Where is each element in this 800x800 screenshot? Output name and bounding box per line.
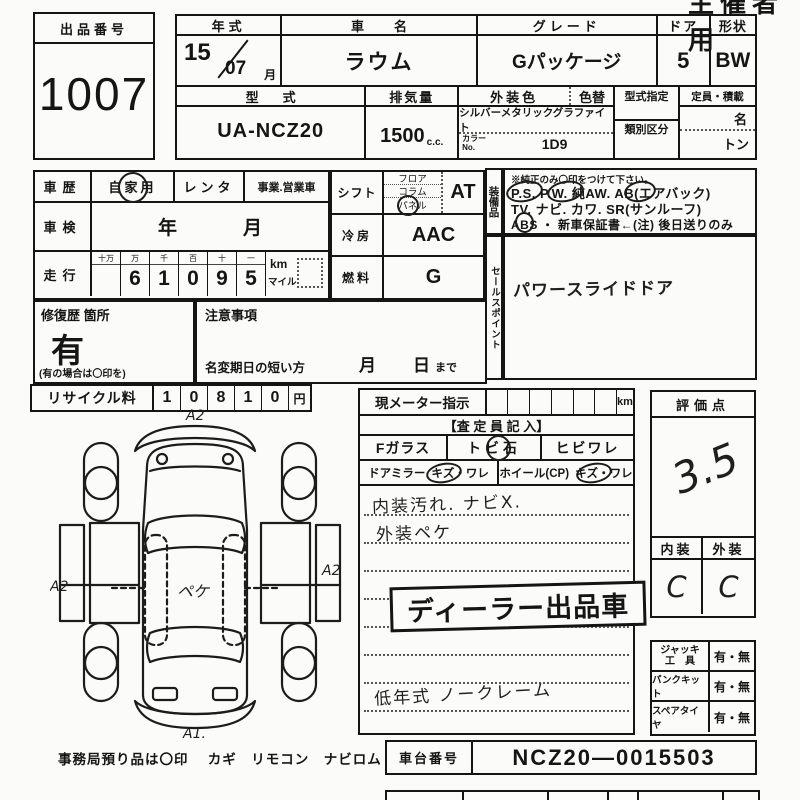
assessor-header: 【査 定 員 記 入】 <box>360 416 633 436</box>
crack-option: ヒビワレ <box>542 436 633 459</box>
year-value: 15 <box>184 39 211 67</box>
evaluation-box: 評価点 3.5 内装 外装 C C <box>650 390 756 618</box>
door-label: ドア <box>658 16 709 36</box>
bottom-partial-table <box>385 790 760 800</box>
mileage-unit-mile: マイル <box>268 274 297 288</box>
exterior-label: 外装 <box>703 538 754 558</box>
grade-value: Gパッケージ <box>478 36 656 85</box>
car-diagram: A2 A2 A2 A1. ペケ <box>50 405 350 740</box>
repair-box: 修復歴 箇所 有 (有の場合は〇印を) <box>33 300 195 384</box>
exterior-grade: C <box>703 560 754 614</box>
model-cell: 型式 UA-NCZ20 <box>177 87 366 158</box>
car-body-outline <box>143 444 247 714</box>
deposit-note: 事務局預り品は〇印 カギ リモコン ナビロム <box>58 748 382 768</box>
puncture-kit-label: パンクキット <box>652 672 710 700</box>
mirror-label: ドアミラー <box>368 465 425 481</box>
right-rear-fender <box>282 623 316 701</box>
evaluation-label: 評価点 <box>652 392 754 418</box>
left-outer-strip <box>60 525 84 621</box>
equipment-box: ※純正のみ〇印をつけて下さい。 P.S. P.W. 純AW. AB(エアバック)… <box>503 168 757 235</box>
jack-tools-value: 有・無 <box>710 642 754 670</box>
history-business: 事業.営業車 <box>245 172 328 201</box>
auction-number-box: 出品番号 1007 <box>33 12 155 160</box>
mileage-col-1k: 千 1 <box>150 252 179 296</box>
grade-cell: グレード Gパッケージ <box>478 16 658 85</box>
cooling-value: AAC <box>384 215 483 255</box>
front-glass-label: Fガラス <box>360 436 448 459</box>
interior-grade: C <box>652 560 703 614</box>
auction-number-label: 出品番号 <box>35 14 153 44</box>
annotation-right: A2 <box>321 563 341 579</box>
model-label: 型式 <box>177 87 364 107</box>
color-no-label: カラー <box>462 134 496 143</box>
displacement-unit: c.c. <box>427 137 444 148</box>
type-designation-label: 型式指定 <box>615 87 678 105</box>
rear-bumper <box>135 701 255 728</box>
caution-box: 注意事項 名変期日の短い方 月 日 まで <box>195 300 487 384</box>
jack-tools-label: ジャッキ <box>660 645 700 656</box>
mileage-col-100: 百 0 <box>179 252 208 296</box>
dealer-stamp-text: ディーラー出品車 <box>406 584 629 629</box>
annotation-left: A2 <box>50 579 69 595</box>
color-cell: 外装色 色替 シルバーメタリックグラファイト カラー No. 1D9 <box>459 87 615 158</box>
history-table: 車歴 自家用 レンタ 事業.営業車 車検 年 月 走行 十万 万 6 千 <box>33 170 330 300</box>
meter-digit-box <box>574 390 596 414</box>
meter-digit-box <box>508 390 530 414</box>
history-rental: レンタ <box>175 172 245 201</box>
color-no-value: 1D9 <box>496 134 613 154</box>
spare-tire-value: 有・無 <box>710 702 754 732</box>
tools-box: ジャッキ 工 具 有・無 パンクキット 有・無 スペアタイヤ 有・無 <box>650 640 756 736</box>
sales-point-strip-label: セールスポイント <box>487 266 501 350</box>
hood-line <box>150 467 240 472</box>
shaken-label: 車検 <box>35 203 92 250</box>
mileage-check-box <box>297 258 323 288</box>
shape-value: BW <box>711 36 755 85</box>
mileage-label: 走行 <box>35 252 92 296</box>
puncture-kit-value: 有・無 <box>710 672 754 700</box>
door-value: 5 <box>658 36 709 85</box>
assessor-claim-note: 低年式 ノークレーム <box>373 675 552 709</box>
history-label: 車歴 <box>35 172 92 201</box>
month-unit: 月 <box>264 66 276 83</box>
left-front-fender <box>84 443 118 521</box>
model-value: UA-NCZ20 <box>177 107 364 156</box>
mileage-unit-km: km <box>270 257 287 271</box>
caution-until: まで <box>435 359 457 375</box>
door-cell: ドア 5 <box>658 16 711 85</box>
capacity-cell: 定員・積載 名 トン <box>680 87 755 158</box>
meter-digit-box <box>552 390 574 414</box>
color-change-label: 色替 <box>569 87 613 105</box>
left-rear-wheel <box>85 647 117 679</box>
color-no-label2: No. <box>462 143 496 152</box>
mileage-col-1: 一 5 <box>237 252 266 296</box>
equipment-line3: ABS ・ 新車保証書←(注) 後日送りのみ <box>511 218 749 233</box>
mileage-col-10: 十 9 <box>208 252 237 296</box>
dealer-stamp: ディーラー出品車 <box>389 581 646 633</box>
left-rear-fender <box>84 623 118 701</box>
chassis-box: 車台番号 NCZ20—0015503 <box>385 740 757 775</box>
right-front-fender <box>282 443 316 521</box>
month-value: 07 <box>225 58 246 80</box>
annotation-center: ペケ <box>177 582 211 601</box>
equipment-strip: 装備品 <box>485 168 503 235</box>
mileage-col-100k: 十万 <box>92 252 121 296</box>
annotation-rear: A1. <box>182 726 206 740</box>
right-door-panel <box>261 523 310 623</box>
repair-note: (有の場合は〇印を) <box>39 365 126 380</box>
year-label: 年式 <box>177 16 280 36</box>
interior-label: 内装 <box>652 538 703 558</box>
caution-label: 注意事項 <box>197 302 485 324</box>
cooling-label: 冷房 <box>332 215 384 255</box>
meter-label: 現メーター指示 <box>360 390 487 414</box>
capacity-label: 定員・積載 <box>680 87 755 107</box>
year-cell: 年式 15 07 月 <box>177 16 282 85</box>
chassis-value: NCZ20—0015503 <box>473 742 755 773</box>
wheel-label: ホイール(CP) <box>499 465 569 481</box>
shift-table: シフト フロア コラム パネル AT 冷房 AAC 燃料 G <box>330 170 485 300</box>
color-label: 外装色 <box>459 87 569 105</box>
color-value: シルバーメタリックグラファイト <box>459 107 613 134</box>
assessor-note-1: 内装汚れ. ナビX. <box>372 487 523 517</box>
annotation-front: A2 <box>185 408 205 424</box>
left-door-panel <box>90 523 139 623</box>
equipment-strip-label: 装備品 <box>487 186 502 218</box>
cowl-dot-right <box>223 454 233 464</box>
meter-unit: km <box>617 390 633 414</box>
left-front-wheel <box>85 467 117 499</box>
right-front-wheel <box>283 467 315 499</box>
displacement-label: 排気量 <box>366 87 457 107</box>
fuel-value: G <box>384 257 483 298</box>
chassis-label: 車台番号 <box>387 742 473 773</box>
caution-day: 日 <box>413 351 430 376</box>
shape-cell: 形状 BW <box>711 16 755 85</box>
shaken-year-unit: 年 <box>158 213 177 240</box>
right-rear-wheel <box>283 647 315 679</box>
windshield <box>145 516 245 554</box>
meter-digit-box <box>595 390 617 414</box>
caution-month: 月 <box>359 351 376 376</box>
mileage-col-10k: 万 6 <box>121 252 150 296</box>
shift-value: AT <box>443 172 483 213</box>
vehicle-table: 年式 15 07 月 車名 ラウム グレード Gパッケージ ドア 5 形状 BW <box>175 14 757 160</box>
sales-point-value: パワースライドドア <box>513 274 675 302</box>
name-label: 車名 <box>282 16 476 36</box>
tail-light-right <box>213 688 237 700</box>
front-bumper <box>135 426 255 451</box>
meter-digit-box <box>487 390 509 414</box>
displacement-value: 1500 <box>380 125 425 148</box>
spare-tire-label: スペアタイヤ <box>652 702 710 732</box>
fuel-label: 燃料 <box>332 257 384 298</box>
capacity-persons-unit: 名 <box>680 107 755 131</box>
auction-number-value: 1007 <box>35 44 153 144</box>
meter-digit-box <box>530 390 552 414</box>
repair-label: 修復歴 箇所 <box>35 302 193 324</box>
displacement-cell: 排気量 1500 c.c. <box>366 87 459 158</box>
name-cell: 車名 ラウム <box>282 16 478 85</box>
class-division-label: 類別区分 <box>615 119 678 137</box>
name-value: ラウム <box>282 36 476 85</box>
assessor-note-2: 外装ペケ <box>376 518 453 546</box>
mileage-unit-cell: km マイル <box>266 252 328 296</box>
type-designation-cell: 型式指定 類別区分 <box>615 87 680 158</box>
evaluation-score: 3.5 <box>665 433 745 503</box>
sales-point-strip: セールスポイント <box>485 235 503 380</box>
auction-sheet: 主催者用 出品番号 1007 年式 15 07 月 車名 ラウム グレード Gパ… <box>0 0 800 800</box>
shaken-month-unit: 月 <box>243 213 262 240</box>
capacity-load-unit: トン <box>680 131 755 155</box>
sales-point-box: パワースライドドア <box>503 235 757 380</box>
grade-label: グレード <box>478 16 656 36</box>
shape-label: 形状 <box>711 16 755 36</box>
cowl-dot-left <box>157 454 167 464</box>
equipment-line2: TV. ナビ. カワ. SR(サンルーフ) <box>511 202 749 218</box>
shift-label: シフト <box>332 172 384 213</box>
tail-light-left <box>153 688 177 700</box>
caution-name-change: 名変期日の短い方 <box>205 357 305 376</box>
